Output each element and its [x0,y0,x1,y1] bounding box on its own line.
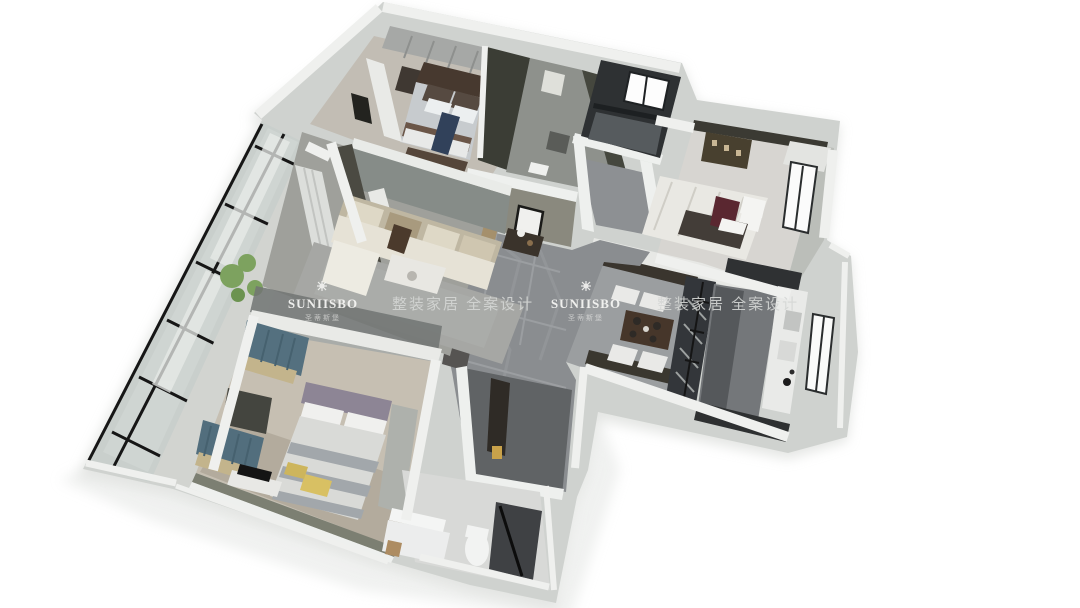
svg-text:圣蒂斯堡: 圣蒂斯堡 [305,313,341,322]
svg-text:圣蒂斯堡: 圣蒂斯堡 [568,313,604,322]
svg-text:整装家居 全案设计: 整装家居 全案设计 [657,295,799,313]
svg-text:SUNIISBO: SUNIISBO [551,296,621,311]
svg-text:整装家居 全案设计: 整装家居 全案设计 [392,295,534,313]
svg-text:SUNIISBO: SUNIISBO [288,296,358,311]
